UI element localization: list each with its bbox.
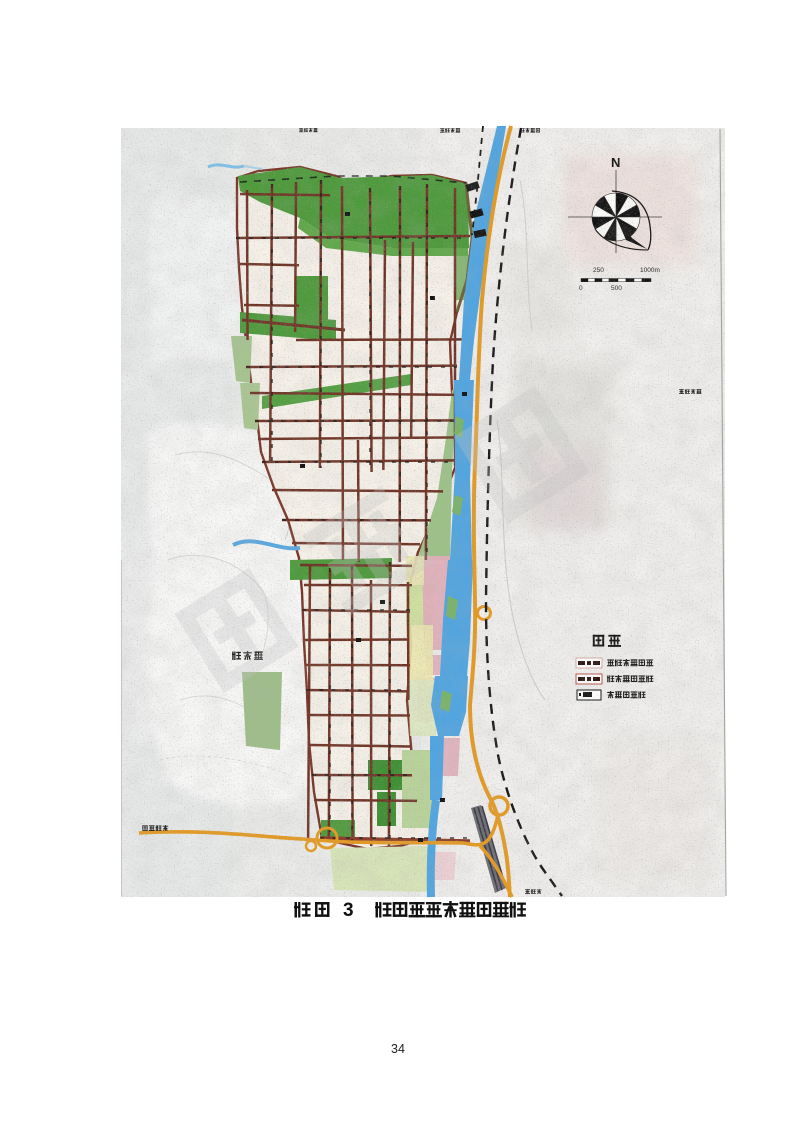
svg-text:34: 34 [391,1042,405,1056]
svg-text:3: 3 [343,900,354,921]
